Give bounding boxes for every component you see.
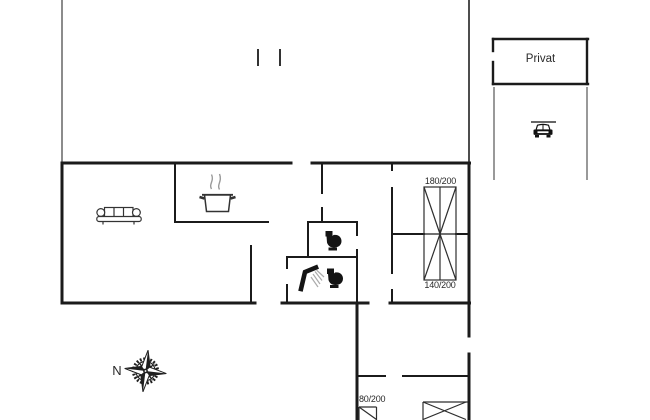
compass-rose-icon [122,348,169,395]
spray-line [311,277,318,287]
spray-line [317,270,325,277]
toilet-base [329,248,338,251]
car-grille [538,131,549,133]
sofa-cushions [105,208,134,218]
bed-symbol-single [359,407,377,420]
bed-size-label-80-200: 80/200 [359,395,385,404]
car-wheel [547,135,551,138]
bed-symbol [423,402,468,420]
site-boundary [62,0,469,162]
toilet-tank [327,269,334,275]
sofa-base [97,217,141,222]
toilet-bowl [328,272,343,285]
car-icon [534,124,553,137]
bed-size-label-140-200: 140/200 [423,281,457,290]
sofa-armrest [97,209,105,217]
car-wheel [535,135,539,138]
toilet-base [330,285,339,288]
bed-symbol-double [424,187,456,280]
exterior-walls [62,163,470,419]
cooking-pot-icon [200,174,236,212]
shower-spray [311,270,324,287]
bed-diagonal [424,187,440,234]
sofa-icon [97,208,141,225]
pot-handle [231,197,236,199]
steam-wave [211,175,213,190]
pot-handle [200,197,205,199]
toilet-bowl [327,235,342,248]
bed-diagonal [440,234,456,280]
bed-diagonal [424,234,440,280]
pot-body [205,195,231,212]
bed-diagonal [359,407,377,420]
garage-label: Privat [493,54,588,66]
toilet-tank [326,231,333,237]
shower-handle [301,268,316,290]
spray-line [313,274,320,284]
toilet-icon [327,269,343,289]
floor-plan: Privat N 180/200 140/200 80/200 [0,0,650,420]
bed-diagonal [440,187,456,234]
shower-icon [301,268,324,290]
bed-size-label-180-200: 180/200 [424,177,457,186]
compass-north-label: N [110,364,124,377]
toilet-icon [326,231,342,251]
steam-wave [219,174,221,190]
sofa-armrest [133,209,141,217]
